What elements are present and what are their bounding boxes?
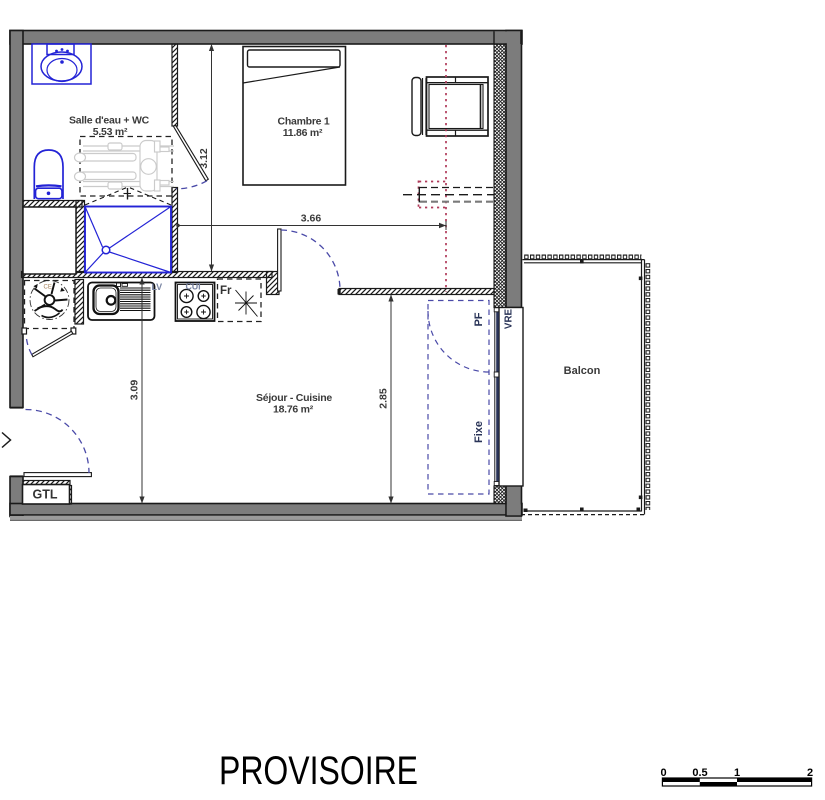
svg-text:0.5: 0.5 <box>692 767 707 779</box>
svg-text:VRE: VRE <box>504 308 515 329</box>
svg-text:Fr: Fr <box>220 285 232 297</box>
svg-text:Balcon: Balcon <box>564 365 601 377</box>
svg-text:CUI: CUI <box>186 282 201 292</box>
svg-text:Chambre 1: Chambre 1 <box>277 116 329 128</box>
svg-text:CE: CE <box>44 285 52 291</box>
svg-text:3.09: 3.09 <box>129 380 141 401</box>
svg-text:2.85: 2.85 <box>378 388 390 409</box>
svg-text:2: 2 <box>807 767 813 779</box>
svg-text:LV: LV <box>152 282 163 292</box>
svg-text:Séjour - Cuisine: Séjour - Cuisine <box>256 392 332 404</box>
svg-text:PF: PF <box>473 312 485 326</box>
svg-text:18.76 m²: 18.76 m² <box>273 404 314 416</box>
svg-text:Salle d'eau + WC: Salle d'eau + WC <box>69 115 150 127</box>
svg-text:3.12: 3.12 <box>198 148 210 169</box>
svg-text:11.86 m²: 11.86 m² <box>283 127 323 139</box>
svg-text:GTL: GTL <box>33 488 58 502</box>
svg-text:5.53 m²: 5.53 m² <box>93 126 128 138</box>
svg-text:Fixe: Fixe <box>473 421 485 443</box>
svg-text:PROVISOIRE: PROVISOIRE <box>219 749 418 793</box>
svg-text:1: 1 <box>734 767 740 779</box>
svg-text:3.66: 3.66 <box>301 213 322 225</box>
svg-text:0: 0 <box>660 767 666 779</box>
